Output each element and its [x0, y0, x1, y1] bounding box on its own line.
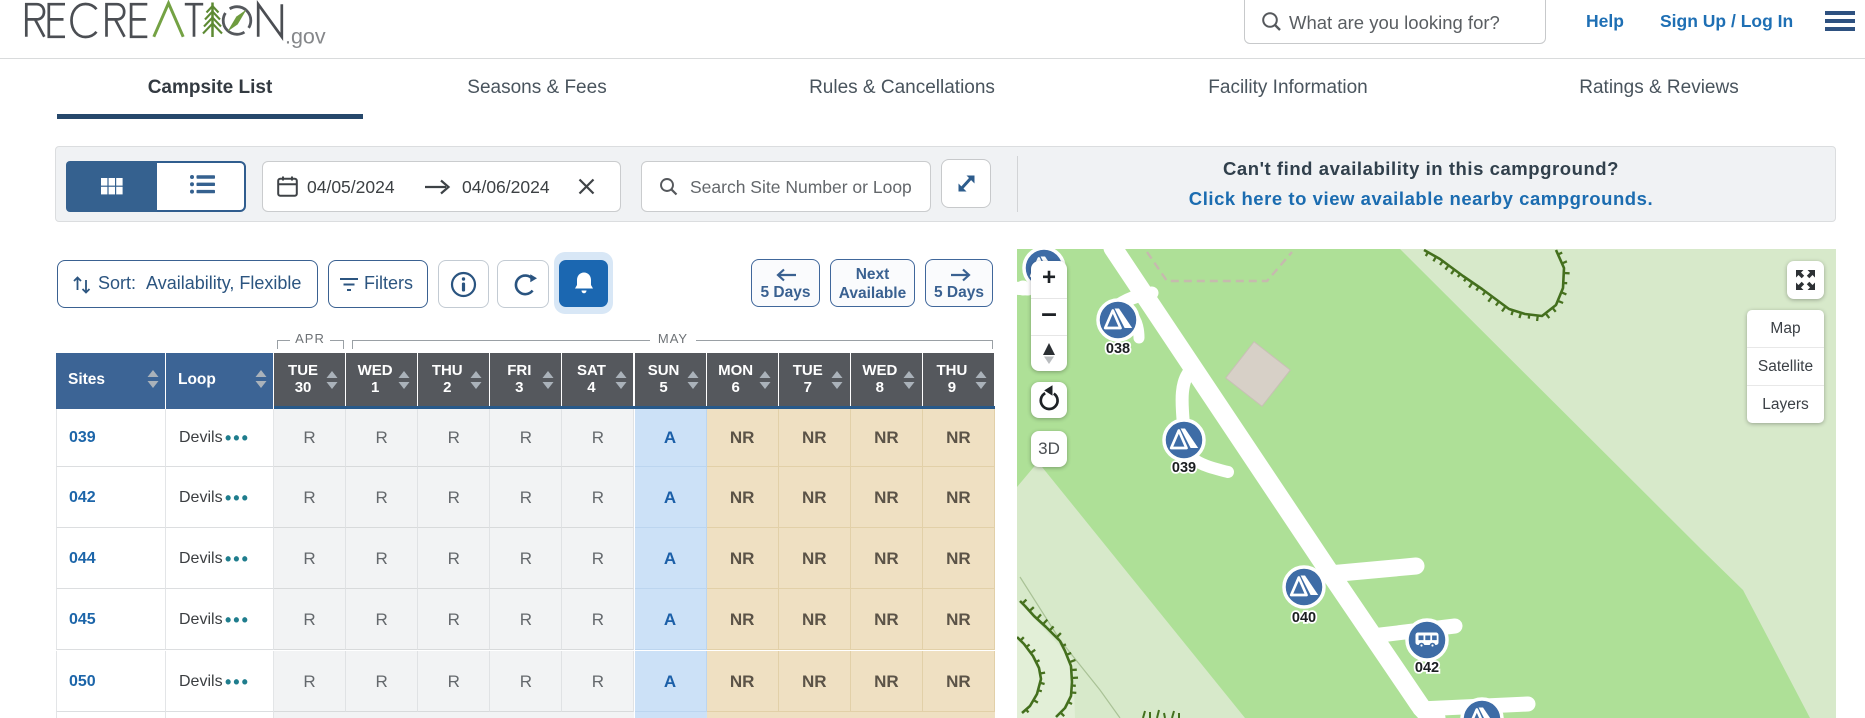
svg-text:040: 040 — [1292, 610, 1316, 626]
svg-text:038: 038 — [1106, 341, 1130, 357]
svg-text:.gov: .gov — [285, 25, 326, 49]
svg-text:039: 039 — [1172, 460, 1196, 476]
svg-text:042: 042 — [1415, 660, 1439, 676]
